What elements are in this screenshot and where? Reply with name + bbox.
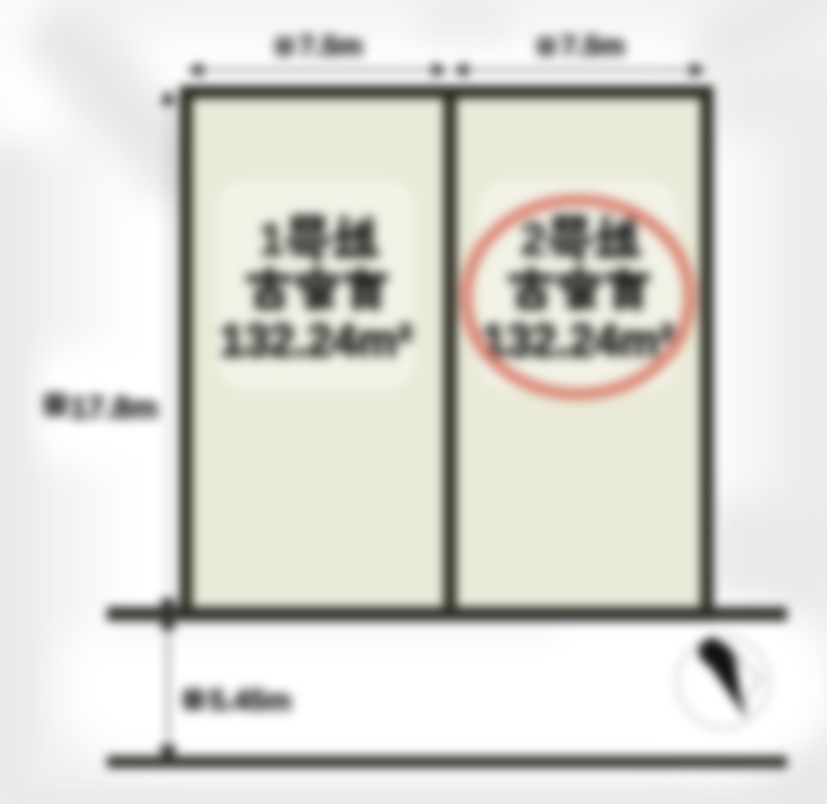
- svg-text:132.24m²: 132.24m²: [220, 315, 413, 366]
- svg-text:5.45m: 5.45m: [209, 685, 291, 717]
- svg-text:132.24m²: 132.24m²: [482, 315, 675, 366]
- svg-text:17.8m: 17.8m: [70, 390, 158, 425]
- svg-text:1: 1: [259, 214, 284, 265]
- svg-text:7.5m: 7.5m: [299, 30, 363, 61]
- svg-text:7.5m: 7.5m: [561, 30, 625, 61]
- svg-text:2: 2: [521, 214, 546, 265]
